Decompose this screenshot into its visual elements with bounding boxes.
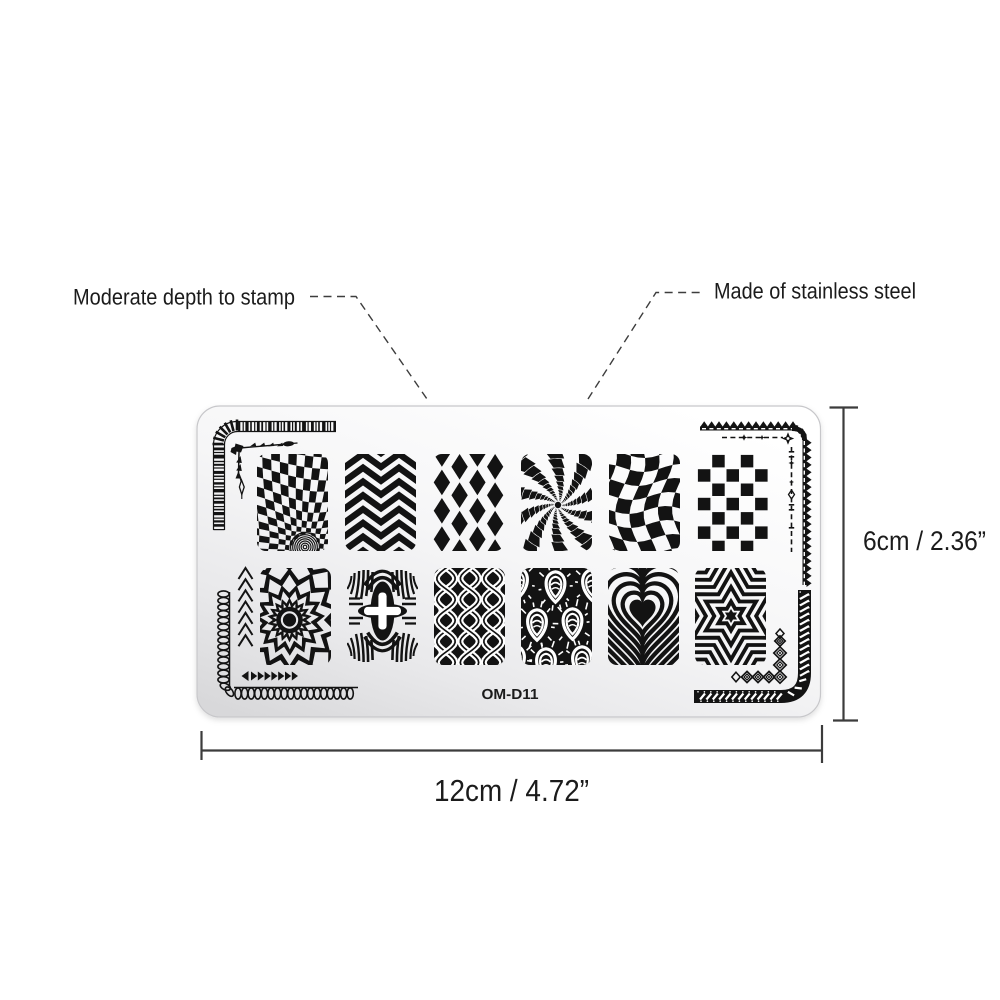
svg-text:OM-D11: OM-D11: [482, 687, 539, 703]
svg-text:Moderate depth to stamp: Moderate depth to stamp: [73, 285, 295, 310]
svg-text:6cm / 2.36”: 6cm / 2.36”: [863, 526, 986, 556]
svg-text:12cm / 4.72”: 12cm / 4.72”: [434, 774, 589, 808]
svg-text:Made of stainless steel: Made of stainless steel: [714, 279, 916, 304]
